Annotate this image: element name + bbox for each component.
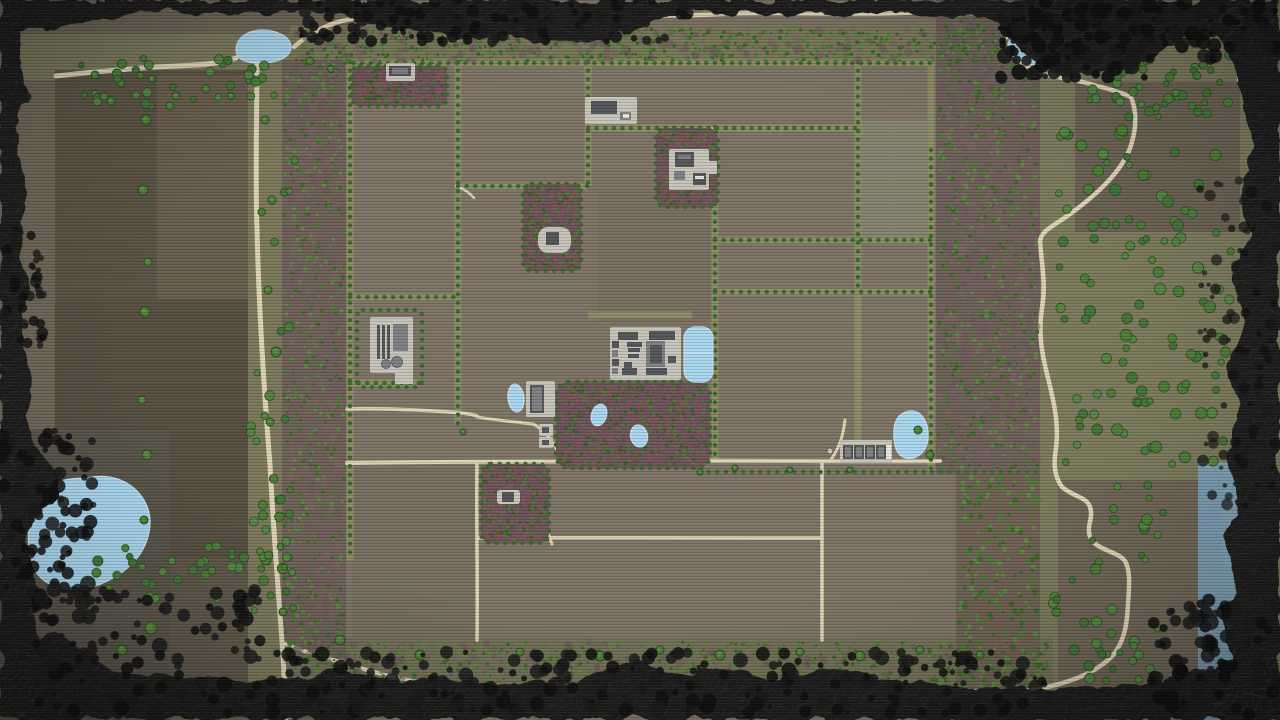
northeast-farm-roof	[675, 152, 694, 167]
central-farmyard-roof	[612, 341, 619, 348]
west-farm-tank	[382, 360, 391, 369]
shed-row-roof	[542, 440, 549, 445]
paddock-light	[858, 120, 932, 240]
north-shed	[386, 63, 415, 81]
farm-pond-double	[684, 327, 713, 382]
tree-highlight	[267, 419, 271, 423]
tree-highlight	[269, 197, 273, 201]
tree-highlight	[139, 397, 143, 401]
north-shed-roof	[392, 68, 408, 74]
tree-highlight	[717, 651, 722, 656]
greenhouses-roof	[867, 447, 873, 457]
west-farm-roof	[387, 325, 390, 359]
central-farmyard-roof	[628, 354, 639, 358]
tree-highlight	[517, 649, 521, 653]
tree-highlight	[733, 466, 736, 469]
tree-highlight	[173, 93, 177, 97]
northeast-farm-roof	[695, 176, 704, 179]
central-farmyard-roof	[649, 331, 675, 340]
tree-highlight	[143, 116, 148, 121]
path-center-vert-west	[477, 462, 478, 640]
tree-highlight	[108, 98, 112, 102]
tree-highlight	[273, 348, 278, 353]
tree-highlight	[167, 103, 171, 107]
tree-highlight	[797, 649, 801, 653]
greenhouses-roof	[845, 447, 851, 457]
central-farmyard-roof	[627, 342, 642, 347]
central-farmyard-roof	[612, 359, 619, 366]
greenhouses-tank	[827, 448, 833, 454]
west-farm-roof	[377, 325, 380, 359]
central-farmyard-roof	[612, 368, 618, 374]
north-farmstead-roof	[591, 101, 617, 114]
tree-highlight	[142, 308, 147, 313]
tree-highlight	[857, 652, 862, 657]
tree-highlight	[262, 117, 266, 121]
orchard-cottage	[538, 227, 571, 253]
central-farmyard-roof	[668, 356, 676, 363]
greenhouse-pond	[894, 411, 928, 458]
northeast-farm-roof	[678, 155, 691, 159]
tree-highlight	[848, 468, 851, 471]
tree-highlight	[788, 468, 791, 471]
tree-highlight	[145, 259, 149, 263]
field-south-left	[352, 468, 475, 640]
central-farmyard-roof	[622, 368, 637, 375]
tree-highlight	[203, 86, 207, 90]
greenhouses-roof	[886, 445, 891, 459]
south-orchard-hut	[497, 490, 520, 504]
tree-highlight	[141, 517, 145, 521]
west-farm-tank	[392, 357, 403, 368]
tree-highlight	[917, 647, 921, 651]
orchard-cottage-roof	[546, 232, 559, 245]
lake-northwest	[236, 30, 291, 63]
tree-highlight	[461, 430, 464, 433]
field-center-dark	[597, 190, 710, 322]
tree-highlight	[927, 452, 931, 456]
northeast-farm-roof	[674, 171, 685, 180]
central-farmyard-roof	[612, 350, 618, 357]
shed-row-roof	[542, 427, 549, 433]
northeast-farm-pad	[706, 161, 717, 174]
tree-highlight	[977, 652, 981, 656]
map-canvas	[0, 0, 1280, 720]
pond-farm-roof	[532, 387, 542, 411]
tree-highlight	[150, 76, 154, 80]
central-farmyard-roof	[646, 368, 667, 375]
central-farmyard	[610, 327, 681, 380]
north-farmstead-roof	[623, 114, 629, 118]
west-farm-roof	[393, 324, 408, 351]
tree-highlight	[915, 427, 919, 431]
greenhouses-roof	[856, 447, 862, 457]
shed-row	[539, 424, 553, 448]
tree-highlight	[229, 93, 233, 97]
tree-highlight	[698, 470, 701, 473]
game-map-viewport[interactable]	[0, 0, 1280, 720]
tree-highlight	[337, 636, 342, 641]
tree-highlight	[144, 451, 149, 456]
tree-highlight	[329, 66, 333, 70]
tree-highlight	[280, 609, 284, 613]
tree-highlight	[92, 72, 96, 76]
tree-highlight	[307, 58, 311, 62]
north-farmstead	[585, 97, 637, 124]
west-farm-roof	[382, 325, 385, 359]
field-southeast	[1058, 480, 1222, 694]
tree-highlight	[265, 287, 269, 291]
greenhouses-roof	[878, 447, 884, 457]
tree-highlight	[147, 624, 153, 630]
tree-highlight	[140, 186, 145, 191]
central-farmyard-roof	[628, 348, 640, 352]
west-farm-pad	[395, 370, 413, 384]
tree-highlight	[657, 647, 661, 651]
south-orchard-hut-roof	[502, 492, 514, 502]
central-farmyard-roof	[650, 345, 662, 363]
central-farmyard-roof	[618, 332, 638, 340]
tree-highlight	[119, 646, 124, 651]
pond-farm	[526, 381, 555, 417]
